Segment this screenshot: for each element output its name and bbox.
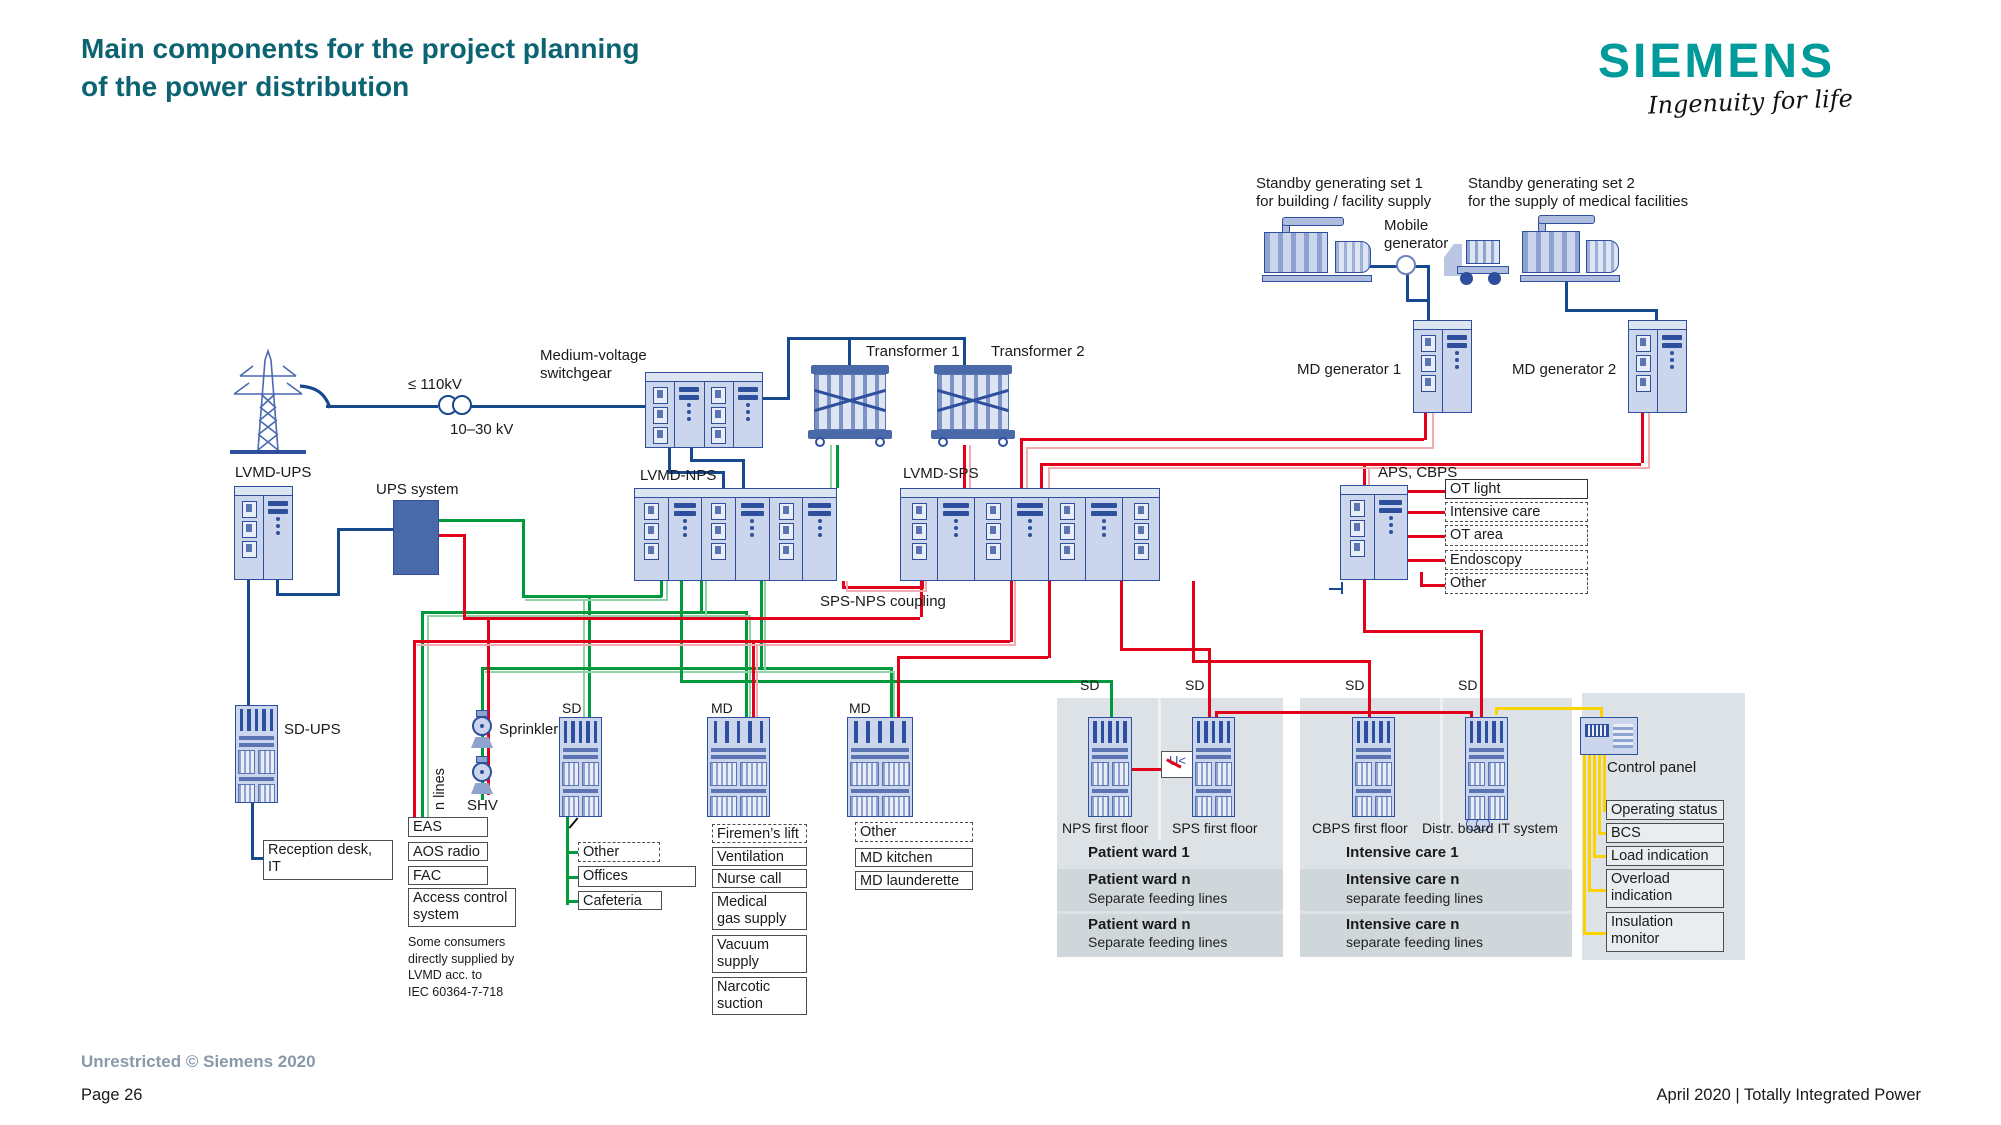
wire <box>749 615 751 717</box>
wire <box>742 459 745 488</box>
wire <box>1048 467 1050 488</box>
lvmd-nps-label: LVMD-NPS <box>640 467 716 485</box>
aps-output-box: OT light <box>1445 479 1588 499</box>
wire <box>1110 680 1113 717</box>
wire <box>846 590 925 592</box>
wire <box>413 640 1010 643</box>
wire <box>1641 413 1644 463</box>
lvmd-nps-cabinet <box>634 488 837 581</box>
lvmd-note: Some consumers directly supplied by LVMD… <box>408 934 514 1000</box>
cbps-first-floor-label: CBPS first floor <box>1312 820 1408 837</box>
sd-ups-label: SD-UPS <box>284 721 341 739</box>
icu-row-sub: separate feeding lines <box>1346 934 1483 950</box>
wire <box>1480 630 1483 717</box>
ground-icon <box>1341 582 1343 594</box>
control-output-box: Operating status <box>1606 800 1724 820</box>
wire <box>1014 581 1016 646</box>
control-output-box: Load indication <box>1606 846 1724 866</box>
wire <box>897 656 900 717</box>
floor-sd-label: SD <box>1080 677 1099 694</box>
wire <box>897 656 1048 659</box>
switchgear-label: Medium-voltage switchgear <box>540 347 647 384</box>
wire <box>925 581 927 592</box>
wire <box>764 581 766 673</box>
page-number: Page 26 <box>81 1086 142 1105</box>
switch-mark <box>569 817 579 828</box>
wire <box>1427 265 1430 320</box>
wire <box>1420 584 1445 587</box>
wire <box>705 581 707 617</box>
slide: OT light Intensive care rooms OT area En… <box>0 0 2001 1125</box>
wire <box>326 405 438 408</box>
lvmd-ups-label: LVMD-UPS <box>235 464 311 482</box>
transformer2-label: Transformer 2 <box>991 343 1085 361</box>
icu-row-title: Intensive care n <box>1346 916 1459 933</box>
wire <box>787 337 790 400</box>
wire <box>1583 755 1586 935</box>
transformer-symbol-icon <box>452 395 472 415</box>
md-output-box: Firemen’s lift <box>712 824 807 843</box>
wire <box>680 581 683 682</box>
ward-row-title: Patient ward 1 <box>1088 844 1190 861</box>
md-generator2-cabinet <box>1628 320 1687 413</box>
mv-label: 10–30 kV <box>450 421 513 439</box>
wire <box>1583 932 1606 935</box>
wire <box>848 340 851 365</box>
wire <box>1408 559 1445 562</box>
wire <box>963 340 966 365</box>
standby-genset2-icon <box>1520 210 1620 282</box>
wire <box>463 534 466 619</box>
sd-board-label: SD <box>562 700 581 717</box>
wire <box>842 586 921 589</box>
wire <box>756 644 758 717</box>
wire <box>417 644 1014 646</box>
standby2-label: Standby generating set 2 for the supply … <box>1468 175 1688 212</box>
wire <box>690 459 742 462</box>
wire <box>1408 511 1445 514</box>
wire <box>1588 889 1606 892</box>
wire <box>893 671 895 717</box>
wire <box>1648 413 1650 469</box>
wire <box>1406 299 1430 302</box>
md-board-1 <box>707 717 770 817</box>
left-consumer-box: AOS radio <box>408 842 488 861</box>
wire <box>1010 581 1013 642</box>
wire <box>1363 580 1366 632</box>
wire <box>566 876 578 879</box>
wire <box>1026 447 1028 488</box>
md-board-2 <box>847 717 913 817</box>
wire <box>437 534 465 537</box>
wire <box>1132 768 1164 771</box>
wire <box>1565 282 1568 312</box>
wire <box>485 671 895 673</box>
left-consumer-box: EAS <box>408 817 488 837</box>
wire <box>1495 707 1602 710</box>
wire <box>1368 467 1370 485</box>
md-output-box: Ventilation sys. <box>712 847 807 866</box>
wire <box>1120 648 1208 651</box>
aps-cbps-cabinet <box>1340 485 1408 580</box>
ground-icon <box>1329 588 1341 590</box>
coupling-label: SPS-NPS coupling <box>820 593 946 611</box>
wire <box>752 640 755 717</box>
wire <box>251 803 254 860</box>
ward-row-title: Patient ward n <box>1088 871 1191 888</box>
reception-box: Reception desk, IT <box>263 840 393 880</box>
wire <box>830 445 832 488</box>
wire <box>1120 581 1123 650</box>
sd-ups-board <box>235 705 278 803</box>
floor-sd-label: SD <box>1345 677 1364 694</box>
ward-row-sub: Separate feeding lines <box>1088 890 1227 906</box>
wire <box>745 611 748 717</box>
ups-system-label: UPS system <box>376 481 459 499</box>
wire <box>1408 535 1445 538</box>
sd-output-box: Other <box>578 842 660 862</box>
wire <box>763 397 790 400</box>
aps-output-box: OT area <box>1445 525 1588 546</box>
it-system-board <box>1465 717 1508 820</box>
wire <box>1040 463 1641 466</box>
md-board2-label: MD <box>849 700 871 717</box>
transformer1-icon <box>807 365 893 445</box>
mobile-connector-icon <box>1396 255 1416 275</box>
wire <box>1655 309 1658 320</box>
control-output-box: Overload indication <box>1606 869 1724 908</box>
siemens-logo: SIEMENS <box>1598 34 1835 89</box>
sprinkler-label: Sprinkler <box>499 721 558 739</box>
lvmd-sps-cabinet <box>900 488 1160 581</box>
md-generator1-cabinet <box>1413 320 1472 413</box>
lvmd-ups-cabinet <box>234 486 293 580</box>
md-board1-label: MD <box>711 700 733 717</box>
cbps-first-floor-board <box>1352 717 1395 817</box>
md-generator2-label: MD generator 2 <box>1512 361 1616 379</box>
floor-sd-label: SD <box>1185 677 1204 694</box>
md-output-box: Narcotic suction <box>712 977 807 1015</box>
lvmd-sps-label: LVMD-SPS <box>903 465 979 483</box>
grid-drop-curve <box>298 384 334 410</box>
wire <box>1208 648 1211 717</box>
sd-output-box: Cafeteria <box>578 891 662 910</box>
nps-first-floor-board <box>1088 717 1132 817</box>
wire <box>1424 413 1427 440</box>
aps-output-box: Intensive care rooms <box>1445 502 1588 522</box>
wire <box>525 599 668 601</box>
wire <box>522 519 525 598</box>
wire <box>722 471 725 488</box>
it-system-label: Distr. board IT system <box>1422 820 1558 837</box>
aps-output-box: Other <box>1445 573 1588 594</box>
wire <box>1368 660 1371 717</box>
wire <box>337 528 393 531</box>
shv-label: SHV <box>467 797 498 815</box>
n-lines-label: n lines <box>432 768 448 810</box>
wire <box>566 817 569 905</box>
mobile-generator-label: Mobile generator <box>1384 217 1448 254</box>
ups-system-box <box>393 500 439 575</box>
wire <box>413 640 416 818</box>
control-output-box: BCS <box>1606 823 1724 843</box>
control-panel-icon <box>1580 717 1638 755</box>
transformer1-label: Transformer 1 <box>866 343 960 361</box>
wire <box>522 595 662 598</box>
wire <box>836 445 839 488</box>
wire <box>1048 467 1648 469</box>
aps-output-box: Endoscopy <box>1445 550 1588 570</box>
wire <box>337 528 340 596</box>
wire <box>1598 832 1606 835</box>
left-consumer-box: Access control system <box>408 888 516 927</box>
wire <box>1408 490 1445 493</box>
nps-first-floor-label: NPS first floor <box>1062 820 1148 837</box>
wire <box>700 581 703 614</box>
wire <box>1495 707 1498 715</box>
wire <box>276 593 339 596</box>
wire <box>481 667 892 670</box>
wire <box>1363 630 1480 633</box>
md-output-box: Other <box>855 822 973 842</box>
md-generator1-label: MD generator 1 <box>1297 361 1401 379</box>
md-output-box: Medical gas supply <box>712 892 807 930</box>
classification-note: Unrestricted © Siemens 2020 <box>81 1052 316 1072</box>
wire <box>1020 438 1023 488</box>
icu-row-sub: separate feeding lines <box>1346 890 1483 906</box>
wire <box>1406 271 1409 302</box>
wire <box>1565 309 1657 312</box>
icu-row-title: Intensive care 1 <box>1346 844 1459 861</box>
page-title: Main components for the project planning… <box>81 30 639 105</box>
siemens-tagline: Ingenuity for life <box>1648 84 1854 119</box>
md-output-box: Nurse call <box>712 869 807 888</box>
aps-cbps-label: APS, CBPS <box>1378 464 1457 482</box>
standby1-label: Standby generating set 1 for building / … <box>1256 175 1431 212</box>
wire <box>566 900 578 903</box>
sps-first-floor-label: SPS first floor <box>1172 820 1258 837</box>
md-output-box: MD launderette <box>855 871 973 890</box>
standby-genset1-icon <box>1262 212 1372 282</box>
left-consumer-box: FAC <box>408 866 488 885</box>
wire <box>1215 711 1470 714</box>
wire <box>566 851 578 854</box>
wire <box>921 581 924 589</box>
wire <box>666 581 668 601</box>
md-output-box: Vacuum supply <box>712 935 807 973</box>
wire <box>1192 581 1195 662</box>
sd-board <box>559 717 602 817</box>
wire <box>1020 438 1424 441</box>
control-panel-label: Control panel <box>1607 759 1696 777</box>
wire <box>468 405 645 408</box>
wire <box>463 617 920 620</box>
medium-voltage-switchgear <box>645 372 763 448</box>
wire <box>1588 755 1591 892</box>
wire <box>1432 413 1434 449</box>
sprinkler-pump-icon <box>471 710 493 750</box>
md-output-box: MD kitchen <box>855 848 973 867</box>
floor-sd-label: SD <box>1458 677 1477 694</box>
wire <box>1026 447 1432 449</box>
edition-note: April 2020 | Totally Integrated Power <box>1657 1086 1921 1105</box>
wire <box>1600 707 1603 717</box>
sps-first-floor-board <box>1192 717 1235 817</box>
sd-output-box: Offices <box>578 866 696 887</box>
wire <box>1192 660 1368 663</box>
transformer2-icon <box>930 365 1016 445</box>
mobile-generator-icon <box>1444 228 1510 286</box>
wire <box>1048 581 1051 658</box>
hv-label: ≤ 110kV <box>408 376 462 394</box>
wire <box>1598 755 1601 835</box>
ward-row-sub: Separate feeding lines <box>1088 934 1227 950</box>
wire <box>1593 755 1596 858</box>
wire <box>1593 855 1606 858</box>
shv-pump-icon <box>471 756 493 796</box>
control-output-box: Insulation monitor <box>1606 912 1724 952</box>
wire <box>680 680 1110 683</box>
wire <box>1040 463 1043 488</box>
wire <box>437 519 524 522</box>
wire <box>421 611 747 614</box>
icu-row-title: Intensive care n <box>1346 871 1459 888</box>
ward-row-title: Patient ward n <box>1088 916 1191 933</box>
wire <box>787 337 966 340</box>
wire <box>760 581 763 670</box>
wire <box>247 580 250 705</box>
